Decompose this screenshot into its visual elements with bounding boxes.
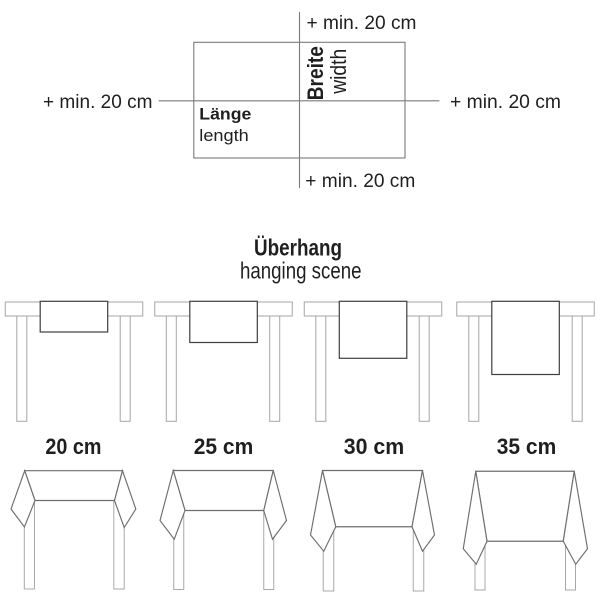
- svg-text:20 cm: 20 cm: [45, 434, 101, 459]
- svg-text:width: width: [326, 49, 351, 95]
- svg-text:+ min. 20 cm: + min. 20 cm: [305, 170, 415, 192]
- svg-text:hanging scene: hanging scene: [240, 258, 362, 284]
- svg-text:Länge: Länge: [199, 104, 251, 123]
- svg-text:+ min. 20 cm: + min. 20 cm: [43, 91, 153, 113]
- svg-text:+ min. 20 cm: + min. 20 cm: [307, 12, 417, 34]
- svg-text:Breite: Breite: [303, 46, 328, 100]
- svg-text:25 cm: 25 cm: [194, 434, 254, 459]
- svg-text:length: length: [199, 126, 249, 145]
- svg-text:35 cm: 35 cm: [497, 434, 557, 459]
- svg-text:30 cm: 30 cm: [344, 434, 405, 459]
- svg-text:+ min. 20 cm: + min. 20 cm: [450, 91, 561, 113]
